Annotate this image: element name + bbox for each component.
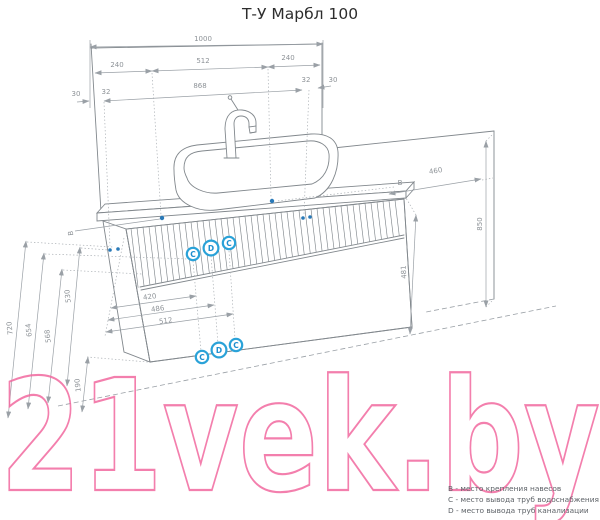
dim-wall-height: 850 (476, 217, 484, 230)
watermark-text: 21vek.by (0, 346, 600, 520)
legend-item-c: C - место вывода труб водоснабжения (448, 495, 599, 504)
dim-hanger-span: 512 (196, 57, 209, 65)
svg-text:D: D (208, 244, 214, 253)
dim-height-568: 568 (43, 329, 52, 343)
cabinet-front (126, 199, 412, 362)
dim-edge-left-outer: 30 (72, 90, 81, 98)
dim-height-530: 530 (63, 289, 72, 303)
page-title: Т-У Марбл 100 (241, 5, 358, 23)
hanger-label-left: B (67, 230, 75, 236)
mount-dot (160, 216, 164, 220)
mount-dot (116, 247, 120, 251)
dim-height-654: 654 (24, 323, 33, 338)
vanity-cabinet (103, 199, 412, 362)
mount-dot (308, 215, 312, 219)
dim-cabinet-height: 481 (400, 265, 409, 279)
svg-text:C: C (190, 250, 196, 259)
legend-item-b: B - место крепления навесов (448, 484, 561, 493)
technical-drawing-page: 1000 240 512 240 30 32 868 32 30 460 B 8… (0, 0, 600, 520)
dim-edge-right-outer: 30 (329, 76, 338, 84)
legend-item-d: D - место вывода труб канализации (448, 506, 589, 515)
dim-panel-width: 868 (193, 82, 206, 90)
dim-height-720: 720 (5, 321, 14, 335)
svg-text:C: C (226, 239, 232, 248)
dim-hanger-right: 240 (281, 54, 294, 62)
mount-dot (270, 199, 274, 203)
dim-overall-width: 1000 (194, 35, 212, 43)
vanity-technical-drawing: 1000 240 512 240 30 32 868 32 30 460 B 8… (0, 0, 600, 520)
dim-edge-left-inner: 32 (102, 88, 111, 96)
dim-hanger-left: 240 (110, 61, 123, 69)
mount-dot (301, 216, 305, 220)
dim-edge-right-inner: 32 (302, 76, 311, 84)
mount-dot (108, 248, 112, 252)
dim-depth: 460 (428, 166, 442, 176)
hanger-label-right: B (398, 179, 403, 187)
